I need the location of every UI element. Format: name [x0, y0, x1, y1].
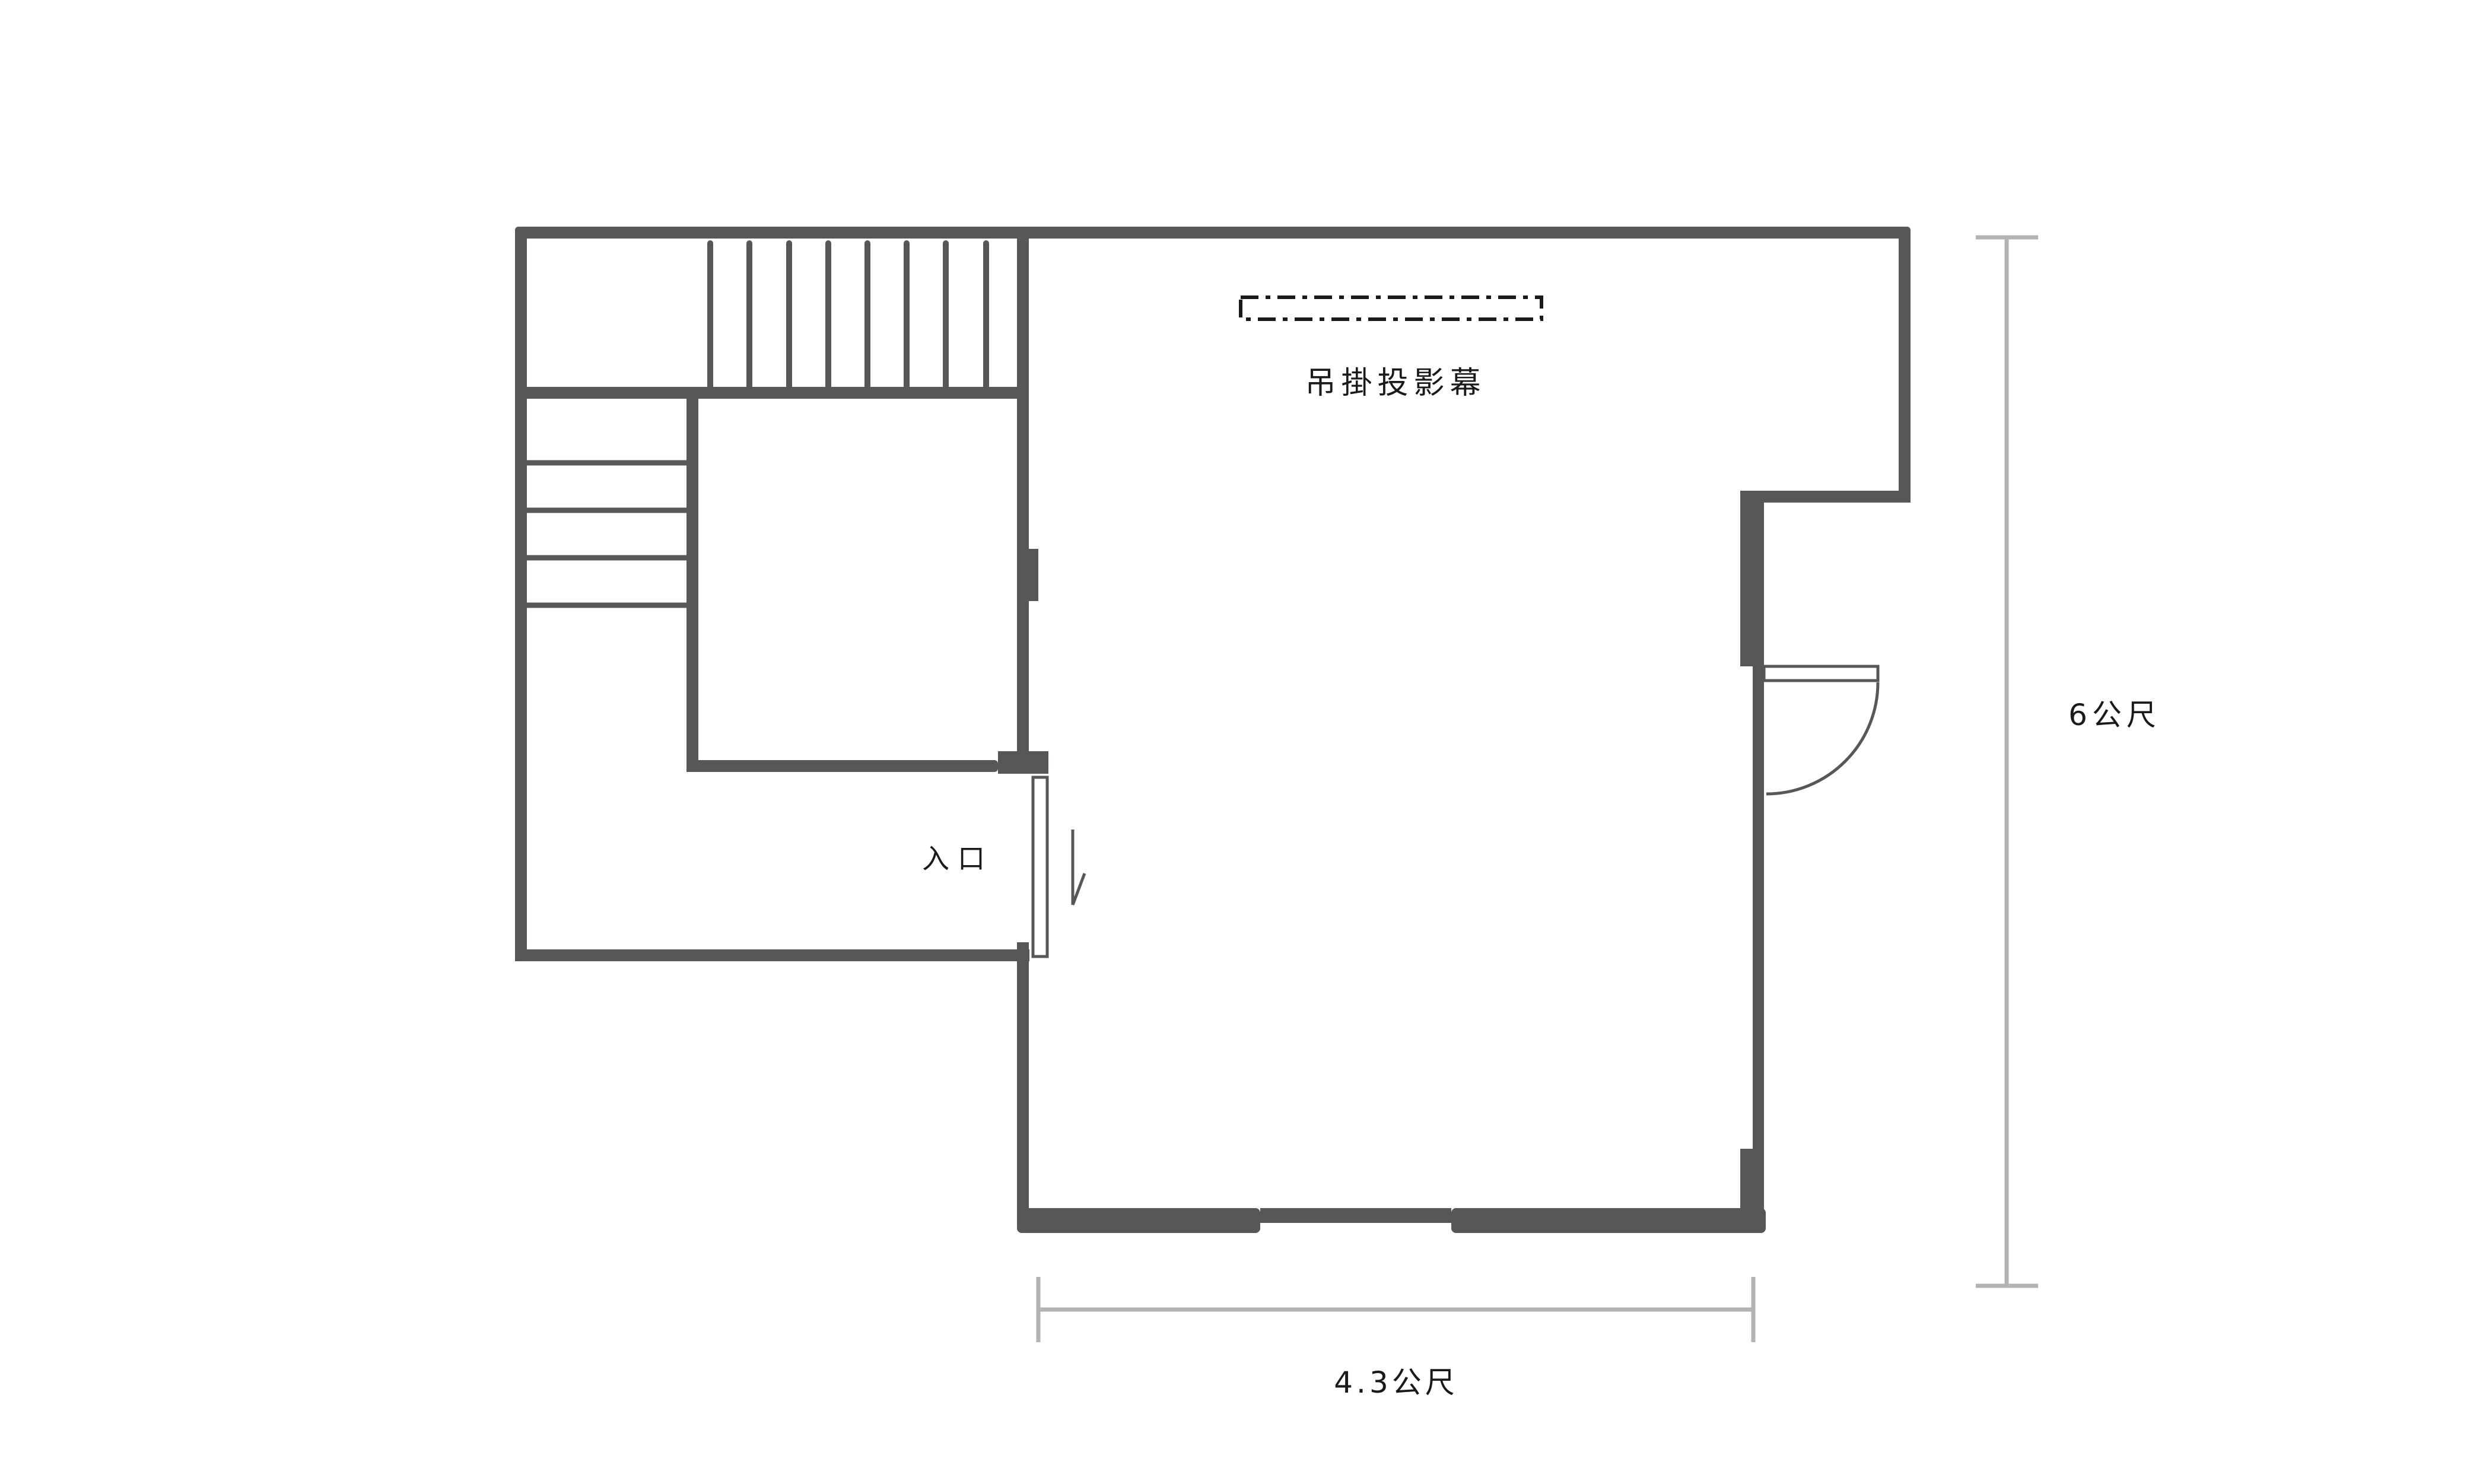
entrance-label: 入口	[922, 843, 993, 875]
right-door	[1764, 666, 1878, 794]
dimension-vertical-label: 6公尺	[2068, 698, 2161, 732]
walls	[515, 227, 1911, 1233]
projection-screen: 吊掛投影幕	[1241, 297, 1541, 401]
entrance-door	[1033, 777, 1085, 957]
projection-screen-marker	[1241, 297, 1541, 319]
entrance-door-leaf	[1033, 777, 1047, 957]
wall-jamb-tab-inner	[1017, 549, 1038, 601]
wall-left-block-bottom	[515, 949, 1029, 961]
dimension-vertical: 6公尺	[1976, 237, 2161, 1286]
dimension-horizontal-label: 4.3公尺	[1334, 1365, 1458, 1400]
wall-main-bottom-right	[1451, 1208, 1766, 1233]
wall-jamb-tab-right-lower	[1740, 1149, 1764, 1221]
stair-run-left	[527, 463, 686, 605]
wall-alcove-bottom	[1753, 491, 1911, 503]
right-door-leaf	[1764, 666, 1878, 681]
wall-inner-room-bottom	[686, 760, 998, 772]
wall-top	[515, 227, 1911, 239]
wall-main-bottom-middle	[1260, 1208, 1451, 1223]
wall-entrance-lintel	[998, 751, 1048, 774]
wall-right-outer	[1899, 227, 1911, 503]
wall-left-outer	[515, 227, 527, 961]
dimension-horizontal: 4.3公尺	[1038, 1277, 1753, 1400]
wall-stair-bottom	[515, 387, 1029, 399]
entrance-door-swing-mark	[1073, 873, 1085, 905]
wall-jamb-tab-right-upper	[1740, 491, 1764, 666]
right-door-swing-arc	[1766, 682, 1878, 794]
floor-plan: 吊掛投影幕 入口 6公尺 4.3公尺	[0, 0, 2473, 1484]
wall-inner-room-left	[686, 387, 698, 772]
projection-screen-label: 吊掛投影幕	[1305, 366, 1486, 401]
stair-run-top	[710, 243, 986, 387]
wall-inner-room-right	[1017, 239, 1029, 752]
wall-main-bottom-left	[1017, 1208, 1260, 1233]
wall-main-left	[1017, 942, 1029, 1221]
